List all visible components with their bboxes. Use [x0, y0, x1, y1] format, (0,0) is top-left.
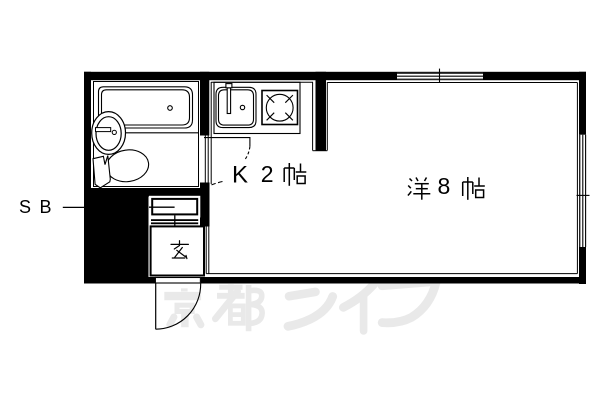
- svg-text:K: K: [232, 162, 248, 189]
- svg-text:2: 2: [261, 161, 274, 187]
- svg-text:8: 8: [438, 173, 451, 199]
- svg-text:SB: SB: [19, 197, 60, 217]
